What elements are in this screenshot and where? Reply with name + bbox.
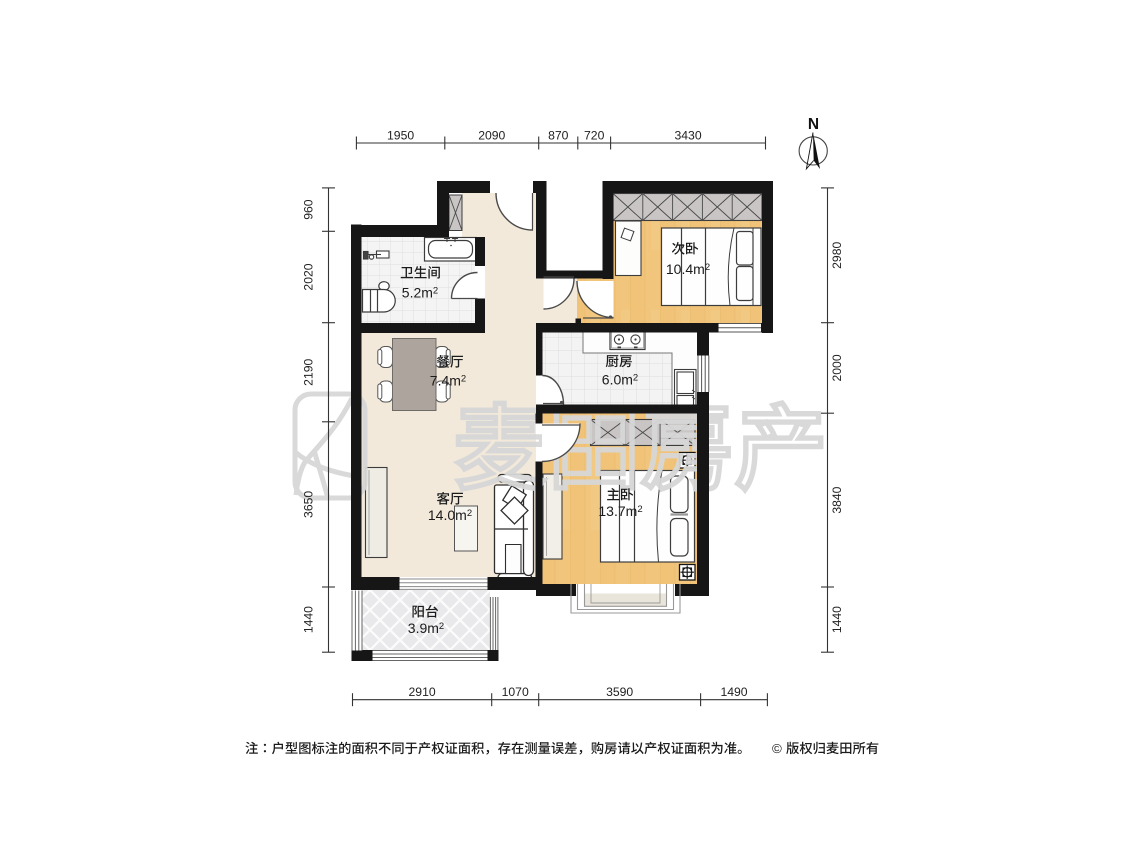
svg-text:1440: 1440 xyxy=(302,606,316,633)
svg-text:2910: 2910 xyxy=(409,685,436,699)
svg-text:2980: 2980 xyxy=(830,242,844,269)
svg-text:6.0m2: 6.0m2 xyxy=(602,372,638,388)
svg-text:3840: 3840 xyxy=(830,486,844,513)
svg-text:960: 960 xyxy=(302,199,316,220)
svg-text:1070: 1070 xyxy=(502,685,529,699)
svg-text:©: © xyxy=(772,741,782,756)
svg-text:3650: 3650 xyxy=(302,491,316,518)
svg-text:2020: 2020 xyxy=(302,263,316,290)
svg-text:2090: 2090 xyxy=(478,129,505,143)
svg-text:14.0m2: 14.0m2 xyxy=(428,507,472,523)
svg-text:1440: 1440 xyxy=(830,606,844,633)
svg-text:3590: 3590 xyxy=(606,685,633,699)
svg-text:720: 720 xyxy=(584,129,605,143)
svg-text:5.2m2: 5.2m2 xyxy=(402,285,438,301)
svg-text:10.4m2: 10.4m2 xyxy=(666,261,710,277)
svg-text:N: N xyxy=(808,116,819,133)
svg-text:7.4m2: 7.4m2 xyxy=(430,373,466,389)
svg-text:13.7m2: 13.7m2 xyxy=(598,503,642,519)
svg-text:3.9m2: 3.9m2 xyxy=(408,620,444,636)
svg-text:1950: 1950 xyxy=(387,129,414,143)
svg-text:1490: 1490 xyxy=(720,685,747,699)
svg-text:3430: 3430 xyxy=(674,129,701,143)
svg-text:870: 870 xyxy=(548,129,569,143)
svg-text:2000: 2000 xyxy=(830,354,844,381)
svg-text:2190: 2190 xyxy=(302,358,316,385)
